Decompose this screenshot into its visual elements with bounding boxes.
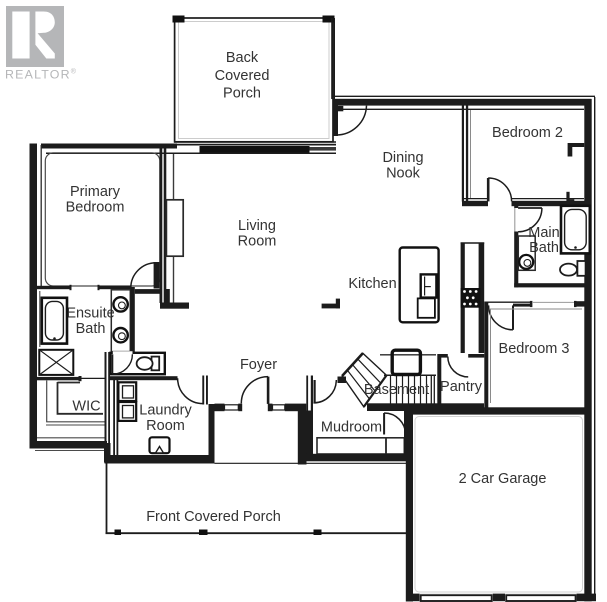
svg-text:Kitchen: Kitchen [348,276,396,292]
svg-text:Bedroom 3: Bedroom 3 [499,341,570,357]
svg-text:Living: Living [238,218,276,234]
svg-text:2 Car Garage: 2 Car Garage [459,471,547,487]
svg-text:Back: Back [226,50,259,66]
svg-text:Front Covered Porch: Front Covered Porch [146,509,281,525]
svg-text:Dining: Dining [382,150,423,166]
svg-text:Nook: Nook [386,166,421,182]
svg-text:Covered: Covered [215,68,270,84]
svg-text:Porch: Porch [223,86,261,102]
svg-text:Laundry: Laundry [139,403,192,419]
svg-text:Bath: Bath [529,240,559,256]
svg-text:WIC: WIC [72,399,100,415]
svg-text:Ensuite: Ensuite [66,306,114,322]
svg-text:Mudroom: Mudroom [321,420,382,436]
svg-text:Room: Room [146,418,185,434]
svg-text:Bedroom 2: Bedroom 2 [492,125,563,141]
svg-text:Room: Room [238,234,277,250]
svg-text:Basement: Basement [364,382,429,398]
svg-text:Main: Main [528,225,559,241]
svg-text:Primary: Primary [70,184,121,200]
svg-text:Bedroom: Bedroom [66,200,125,216]
svg-text:Bath: Bath [76,321,106,337]
svg-text:Pantry: Pantry [440,379,483,395]
svg-text:Foyer: Foyer [240,357,277,373]
svg-text:REALTOR®: REALTOR® [5,68,77,82]
